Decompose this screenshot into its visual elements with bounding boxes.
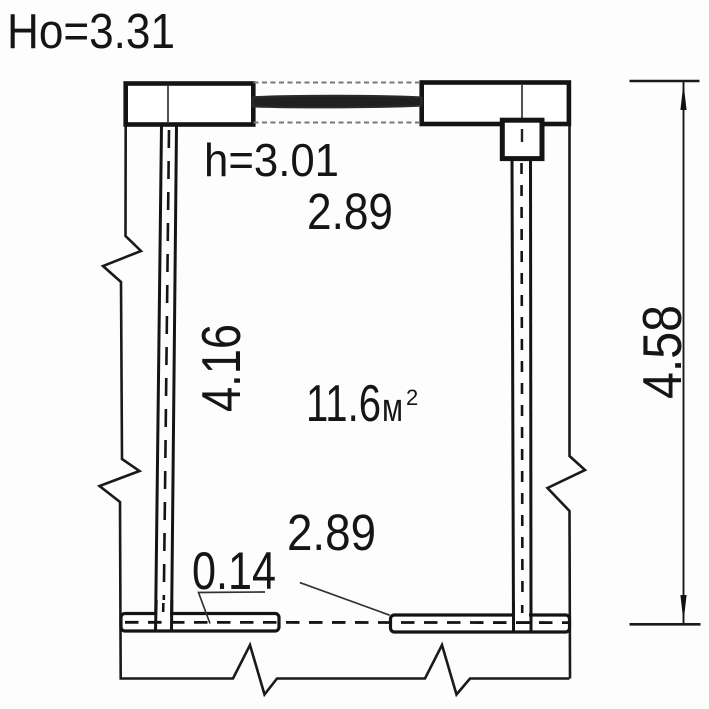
svg-text:м: м bbox=[382, 386, 403, 430]
svg-text:2.89: 2.89 bbox=[307, 183, 393, 240]
svg-text:11.6: 11.6 bbox=[306, 375, 381, 433]
svg-text:h=3.01: h=3.01 bbox=[204, 134, 339, 186]
svg-text:4.58: 4.58 bbox=[631, 305, 693, 399]
svg-text:2: 2 bbox=[406, 385, 418, 410]
svg-text:2.89: 2.89 bbox=[287, 504, 376, 561]
svg-text:Ho=3.31: Ho=3.31 bbox=[7, 5, 175, 59]
svg-text:4.16: 4.16 bbox=[190, 324, 252, 412]
